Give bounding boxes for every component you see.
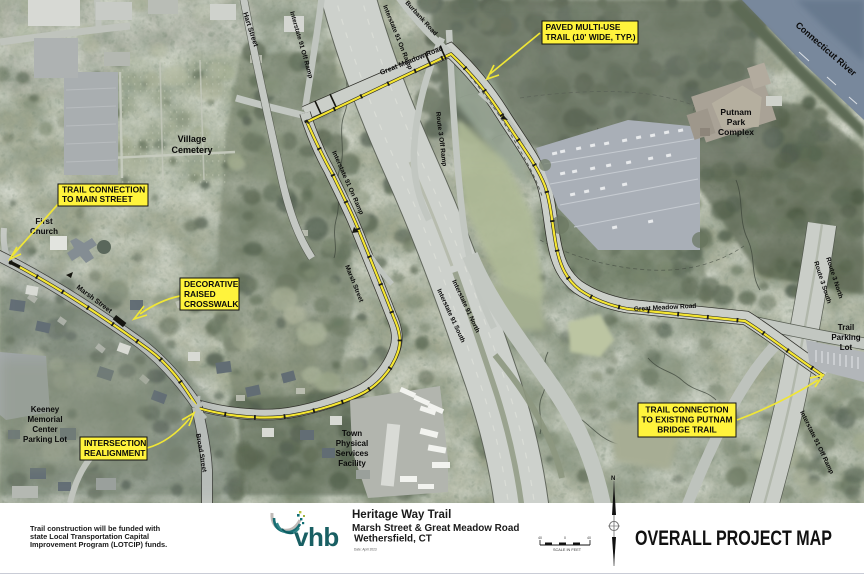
svg-text:TRAIL (10' WIDE, TYP.): TRAIL (10' WIDE, TYP.) [546,32,636,42]
svg-text:TO MAIN STREET: TO MAIN STREET [62,194,133,204]
svg-text:TRAIL CONNECTION: TRAIL CONNECTION [62,185,145,195]
svg-text:Parking: Parking [831,333,860,342]
svg-text:DECORATIVE: DECORATIVE [184,279,239,289]
svg-text:Memorial: Memorial [27,415,62,424]
svg-text:Wethersfield, CT: Wethersfield, CT [354,534,432,545]
svg-text:First: First [35,217,53,226]
svg-text:REALIGNMENT: REALIGNMENT [84,448,146,458]
svg-text:Trail: Trail [838,323,854,332]
svg-text:Park: Park [727,117,746,127]
svg-text:0: 0 [564,536,566,540]
svg-text:Parking Lot: Parking Lot [23,435,67,444]
svg-text:SCALE IN FEET: SCALE IN FEET [553,548,582,552]
svg-text:Heritage Way Trail: Heritage Way Trail [352,509,451,521]
svg-text:40: 40 [587,536,591,540]
svg-text:Town: Town [342,429,362,438]
svg-text:40: 40 [538,536,542,540]
svg-text:vhb: vhb [294,522,339,552]
svg-text:Putnam: Putnam [720,107,752,117]
svg-text:TRAIL CONNECTION: TRAIL CONNECTION [645,405,728,415]
svg-text:Physical: Physical [336,439,368,448]
svg-text:Lot: Lot [840,343,853,352]
svg-text:Village: Village [178,134,207,144]
svg-text:OVERALL PROJECT MAP: OVERALL PROJECT MAP [635,526,832,550]
svg-text:Improvement Program (LOTCIP) f: Improvement Program (LOTCIP) funds. [30,540,167,549]
svg-text:N: N [611,476,615,482]
svg-text:Facility: Facility [338,459,366,468]
svg-text:CROSSWALK: CROSSWALK [184,299,238,309]
svg-text:Services: Services [336,449,369,458]
svg-text:PAVED MULTI-USE: PAVED MULTI-USE [546,22,621,32]
svg-text:TO EXISTING PUTNAM: TO EXISTING PUTNAM [641,415,732,425]
svg-text:Marsh Street & Great Meadow Ro: Marsh Street & Great Meadow Road [352,523,519,534]
svg-text:BRIDGE TRAIL: BRIDGE TRAIL [657,425,717,435]
svg-text:Cemetery: Cemetery [171,145,212,155]
svg-text:RAISED: RAISED [184,289,216,299]
svg-text:Keeney: Keeney [31,405,60,414]
svg-text:Date: April 2023: Date: April 2023 [354,548,377,552]
svg-text:INTERSECTION: INTERSECTION [84,438,146,448]
svg-text:Center: Center [32,425,57,434]
svg-text:Complex: Complex [718,127,754,137]
